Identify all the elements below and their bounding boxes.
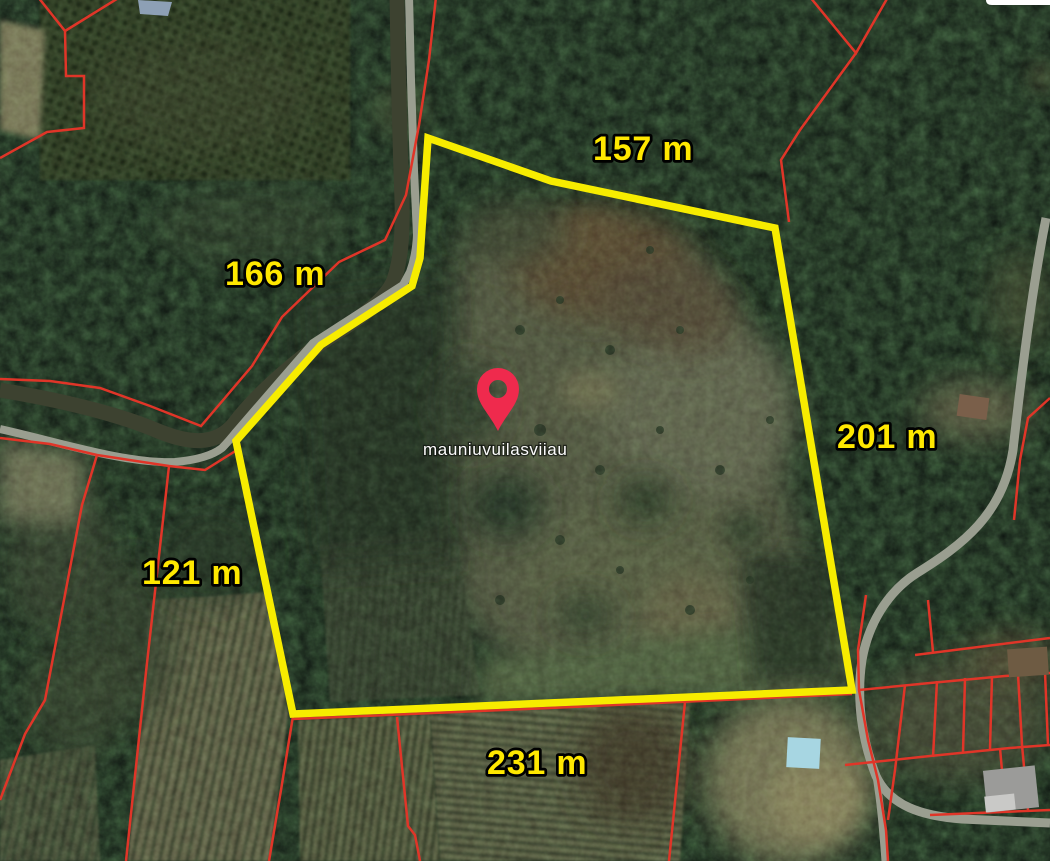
svg-text:166 m: 166 m: [225, 255, 325, 293]
svg-text:231 m: 231 m: [487, 744, 587, 782]
svg-text:121 m: 121 m: [142, 554, 242, 592]
svg-text:157 m: 157 m: [593, 130, 693, 168]
svg-text:201 m: 201 m: [837, 418, 937, 456]
svg-text:mauniuvuilasviiau: mauniuvuilasviiau: [423, 440, 567, 459]
